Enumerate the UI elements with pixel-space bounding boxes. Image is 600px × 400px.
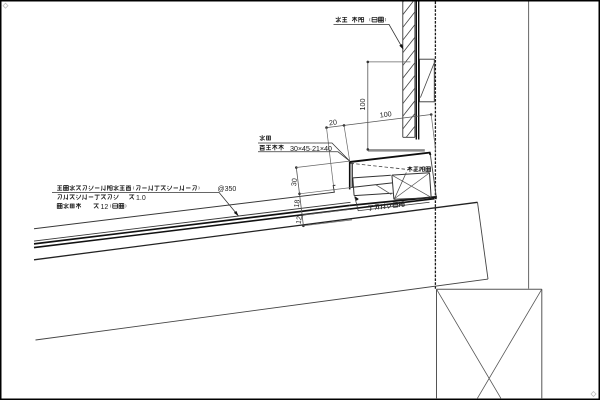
svg-text:100: 100 — [358, 99, 367, 111]
svg-text:1.0: 1.0 — [136, 195, 146, 202]
svg-text:20: 20 — [328, 117, 337, 127]
svg-text:12: 12 — [101, 204, 109, 211]
svg-text:30: 30 — [289, 178, 299, 187]
svg-text:18: 18 — [292, 199, 302, 208]
svg-text:@350: @350 — [218, 186, 237, 193]
svg-text:12: 12 — [294, 216, 304, 225]
svg-text:100: 100 — [379, 109, 392, 119]
